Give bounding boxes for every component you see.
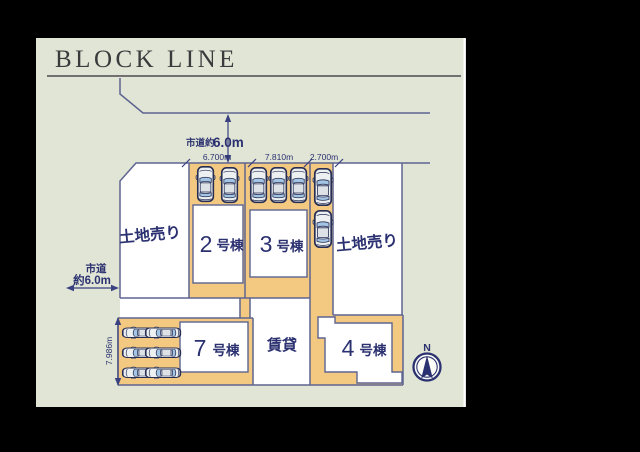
car-icon	[269, 168, 288, 203]
car-icon	[220, 168, 239, 203]
top-road-label-value: 6.0m	[213, 135, 244, 150]
dimension-label-top-1: 6.700m	[203, 152, 231, 162]
label-rental: 賃貸	[266, 336, 297, 354]
car-icon	[249, 168, 268, 203]
car-icon	[196, 167, 215, 202]
plot-connector-strip	[240, 298, 250, 318]
label-unit2-suffix: 号棟	[217, 237, 244, 253]
label-unit7-suffix: 号棟	[213, 342, 240, 358]
dimension-label-left: 7.986m	[104, 337, 114, 365]
site-plan-svg: BLOCK LINE	[0, 0, 640, 452]
left-road-label-line1: 市道	[86, 262, 107, 275]
label-unit2-number: 2	[200, 231, 213, 257]
panel-right-edge	[464, 38, 466, 407]
label-unit7-number: 7	[194, 335, 207, 361]
car-icon	[313, 211, 333, 247]
dimension-label-top-3: 2.700m	[310, 152, 338, 162]
label-unit4-number: 4	[342, 335, 355, 361]
top-road-label-prefix: 市道約	[186, 137, 215, 149]
car-icon	[146, 347, 181, 358]
dimension-label-top-2: 7.810m	[265, 152, 293, 162]
compass-label: N	[423, 342, 431, 354]
left-road-label-line2: 約6.0m	[73, 273, 111, 287]
page-title: BLOCK LINE	[55, 46, 238, 73]
label-unit3-number: 3	[260, 231, 273, 257]
car-icon	[313, 169, 333, 205]
car-icon	[146, 367, 181, 378]
page-background: BLOCK LINE	[0, 0, 640, 452]
car-icon	[146, 327, 181, 338]
label-unit4-suffix: 号棟	[360, 342, 387, 358]
car-icon	[289, 168, 308, 203]
label-unit3-suffix: 号棟	[277, 238, 304, 254]
